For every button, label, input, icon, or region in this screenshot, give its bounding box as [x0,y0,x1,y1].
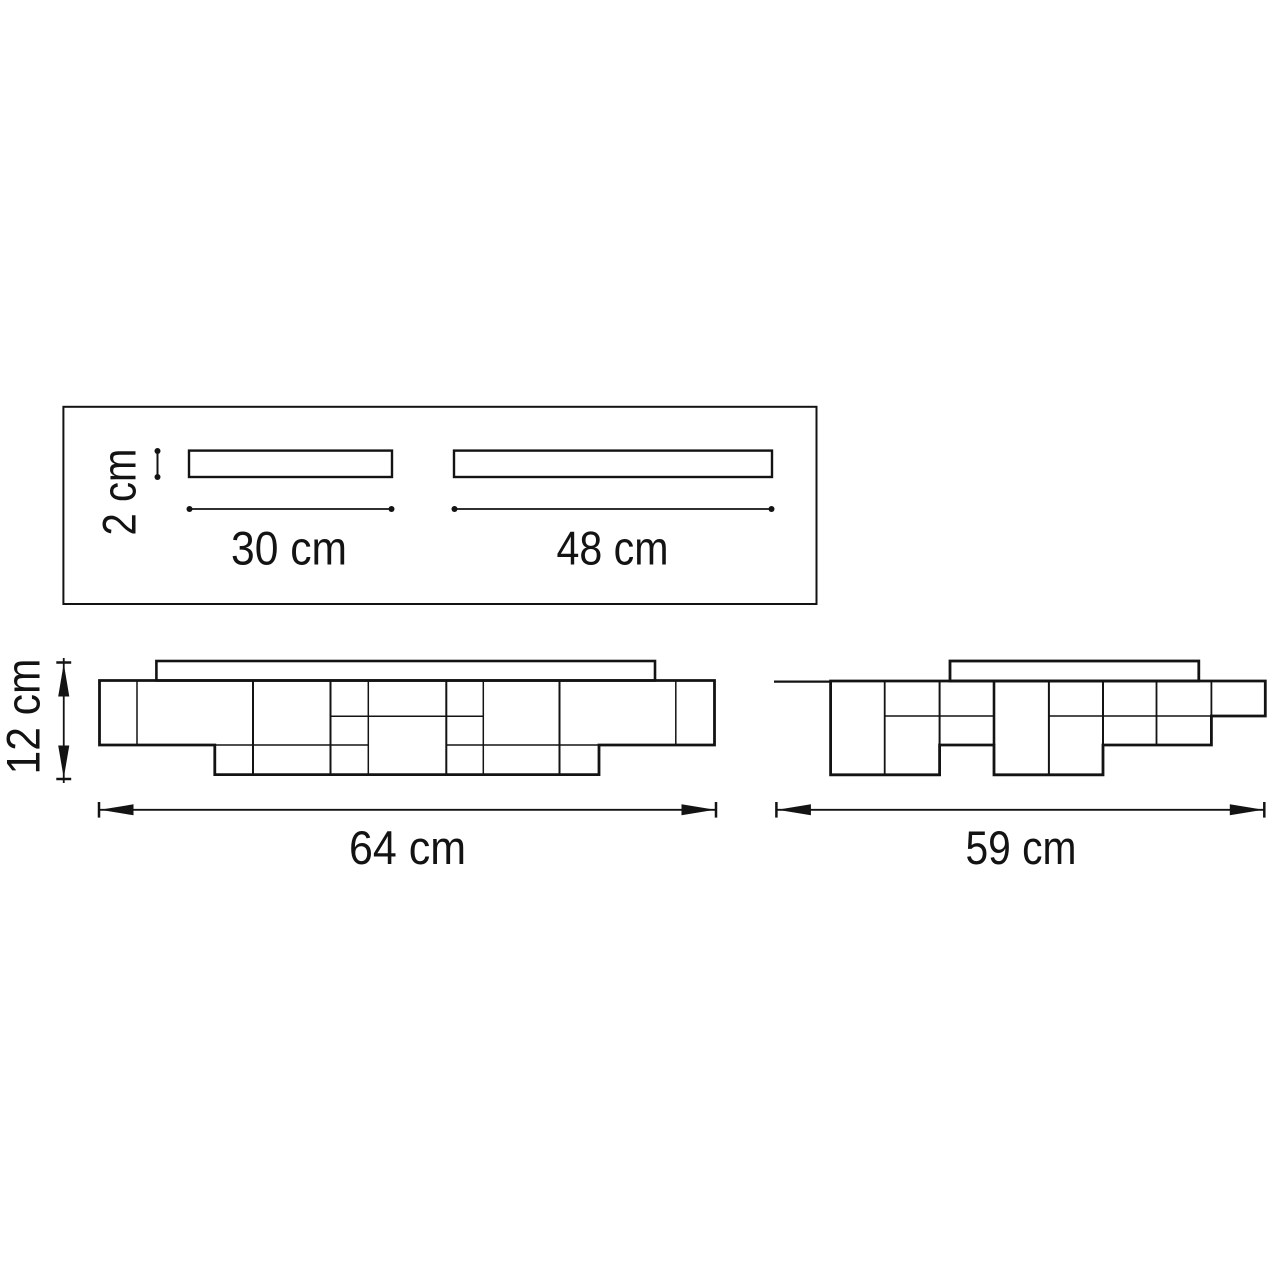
svg-text:30 cm: 30 cm [231,522,347,575]
svg-text:48 cm: 48 cm [557,522,669,575]
svg-text:12 cm: 12 cm [0,659,50,775]
svg-text:64 cm: 64 cm [349,821,466,874]
svg-text:2 cm: 2 cm [93,449,146,536]
svg-text:59 cm: 59 cm [966,821,1077,874]
